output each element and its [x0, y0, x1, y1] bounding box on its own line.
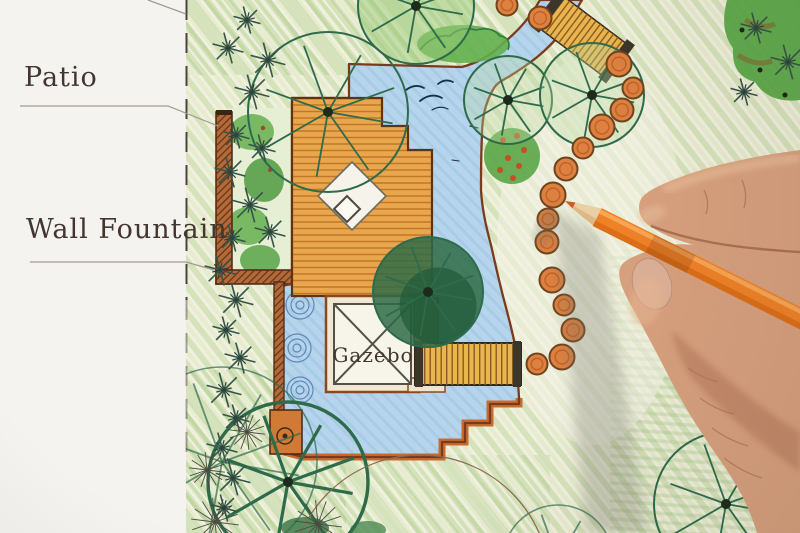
stepping-stone: [607, 52, 632, 77]
berry-dot: [510, 175, 516, 181]
wall-fountain-label: Wall Fountain: [26, 214, 228, 245]
stepping-stone: [590, 115, 615, 140]
berry-dot: [505, 155, 511, 161]
stepping-stone: [541, 183, 566, 208]
landscape-plan-photo: Patio Wall Fountain Gazebo: [0, 0, 800, 533]
patio-label: Patio: [24, 62, 98, 93]
berry-dot: [497, 167, 503, 173]
tree-symbol: [373, 237, 483, 347]
berry-dot: [521, 147, 527, 153]
stepping-stone: [573, 138, 594, 159]
berry-dot: [516, 163, 522, 169]
stepping-stone: [611, 99, 634, 122]
tree-symbol: [464, 56, 552, 144]
gazebo-label: Gazebo: [332, 343, 413, 367]
stepping-stone: [529, 7, 552, 30]
stepping-stone: [497, 0, 518, 16]
plan-drawing: Patio Wall Fountain Gazebo: [0, 0, 800, 533]
stepping-stone: [527, 354, 548, 375]
stepping-stone: [555, 158, 578, 181]
stepping-stone: [623, 78, 644, 99]
